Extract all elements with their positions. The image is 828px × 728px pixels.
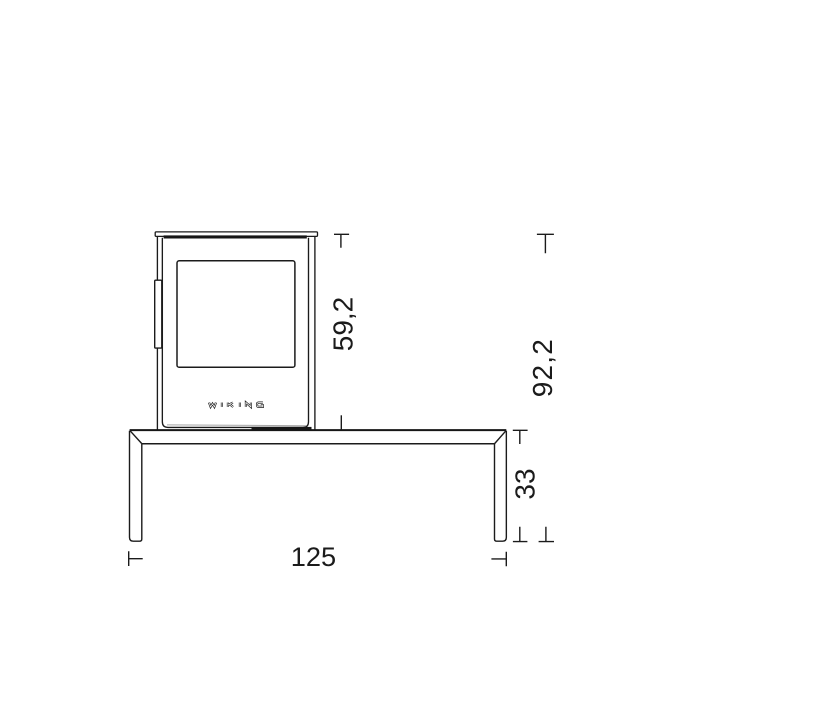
svg-text:125: 125 [291,541,336,572]
svg-text:92,2: 92,2 [527,338,558,397]
svg-text:59,2: 59,2 [328,297,359,352]
svg-text:33: 33 [510,468,541,499]
